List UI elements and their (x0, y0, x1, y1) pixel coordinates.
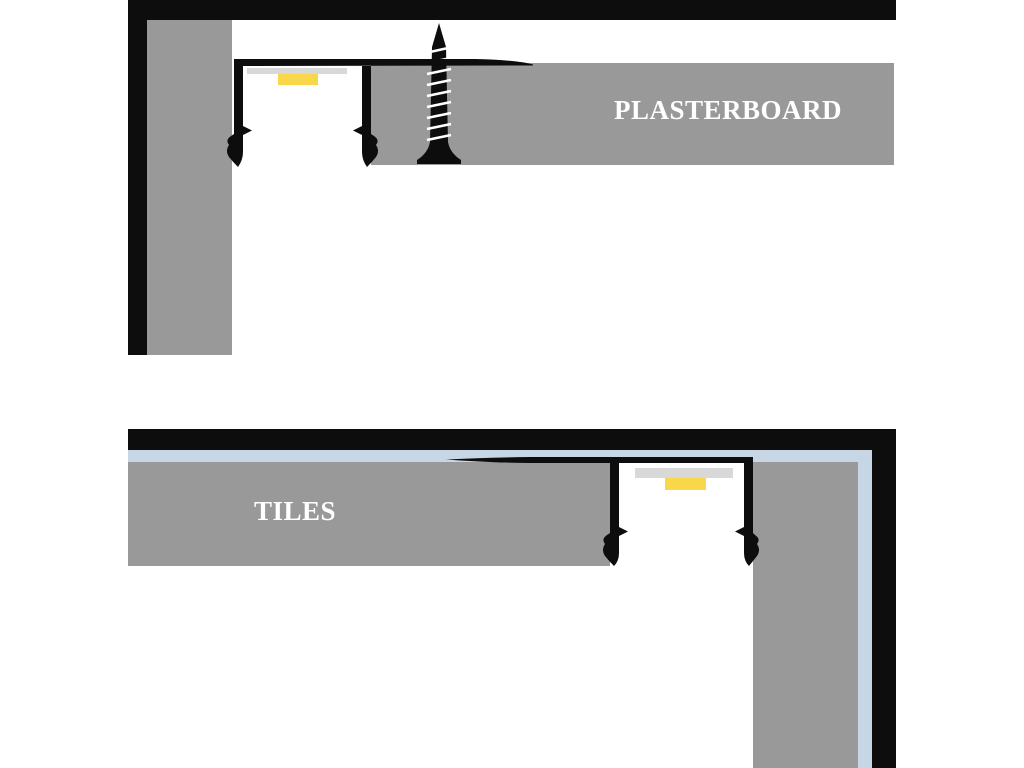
profile-wall-right (353, 66, 378, 167)
diffuser-strip (635, 468, 733, 478)
profile-flange (234, 59, 533, 66)
profile-flange (446, 457, 753, 463)
tiles-black-bar-right (872, 429, 896, 768)
plasterboard-label: PLASTERBOARD (593, 95, 863, 125)
led-profile-installation-diagram: PLASTERBOARD (0, 0, 1024, 768)
wall-gray-strip (147, 20, 232, 355)
profile-wall-right (735, 463, 759, 566)
profile-wall-left (227, 66, 252, 167)
led-strip (278, 74, 318, 85)
tile-adhesive-strip-vertical (858, 450, 872, 768)
led-profile-cross-section-icon (225, 55, 540, 173)
ceiling-black-bar-top (128, 0, 896, 20)
wall-black-bar-left (128, 0, 148, 355)
profile-wall-left (603, 463, 628, 566)
tiles-gray-panel-right (753, 462, 858, 768)
diffuser-strip (247, 68, 347, 74)
led-profile-cross-section-icon (440, 450, 760, 570)
tiles-black-bar-top (128, 429, 896, 450)
led-strip (665, 478, 706, 490)
tiles-label: TILES (225, 496, 365, 526)
